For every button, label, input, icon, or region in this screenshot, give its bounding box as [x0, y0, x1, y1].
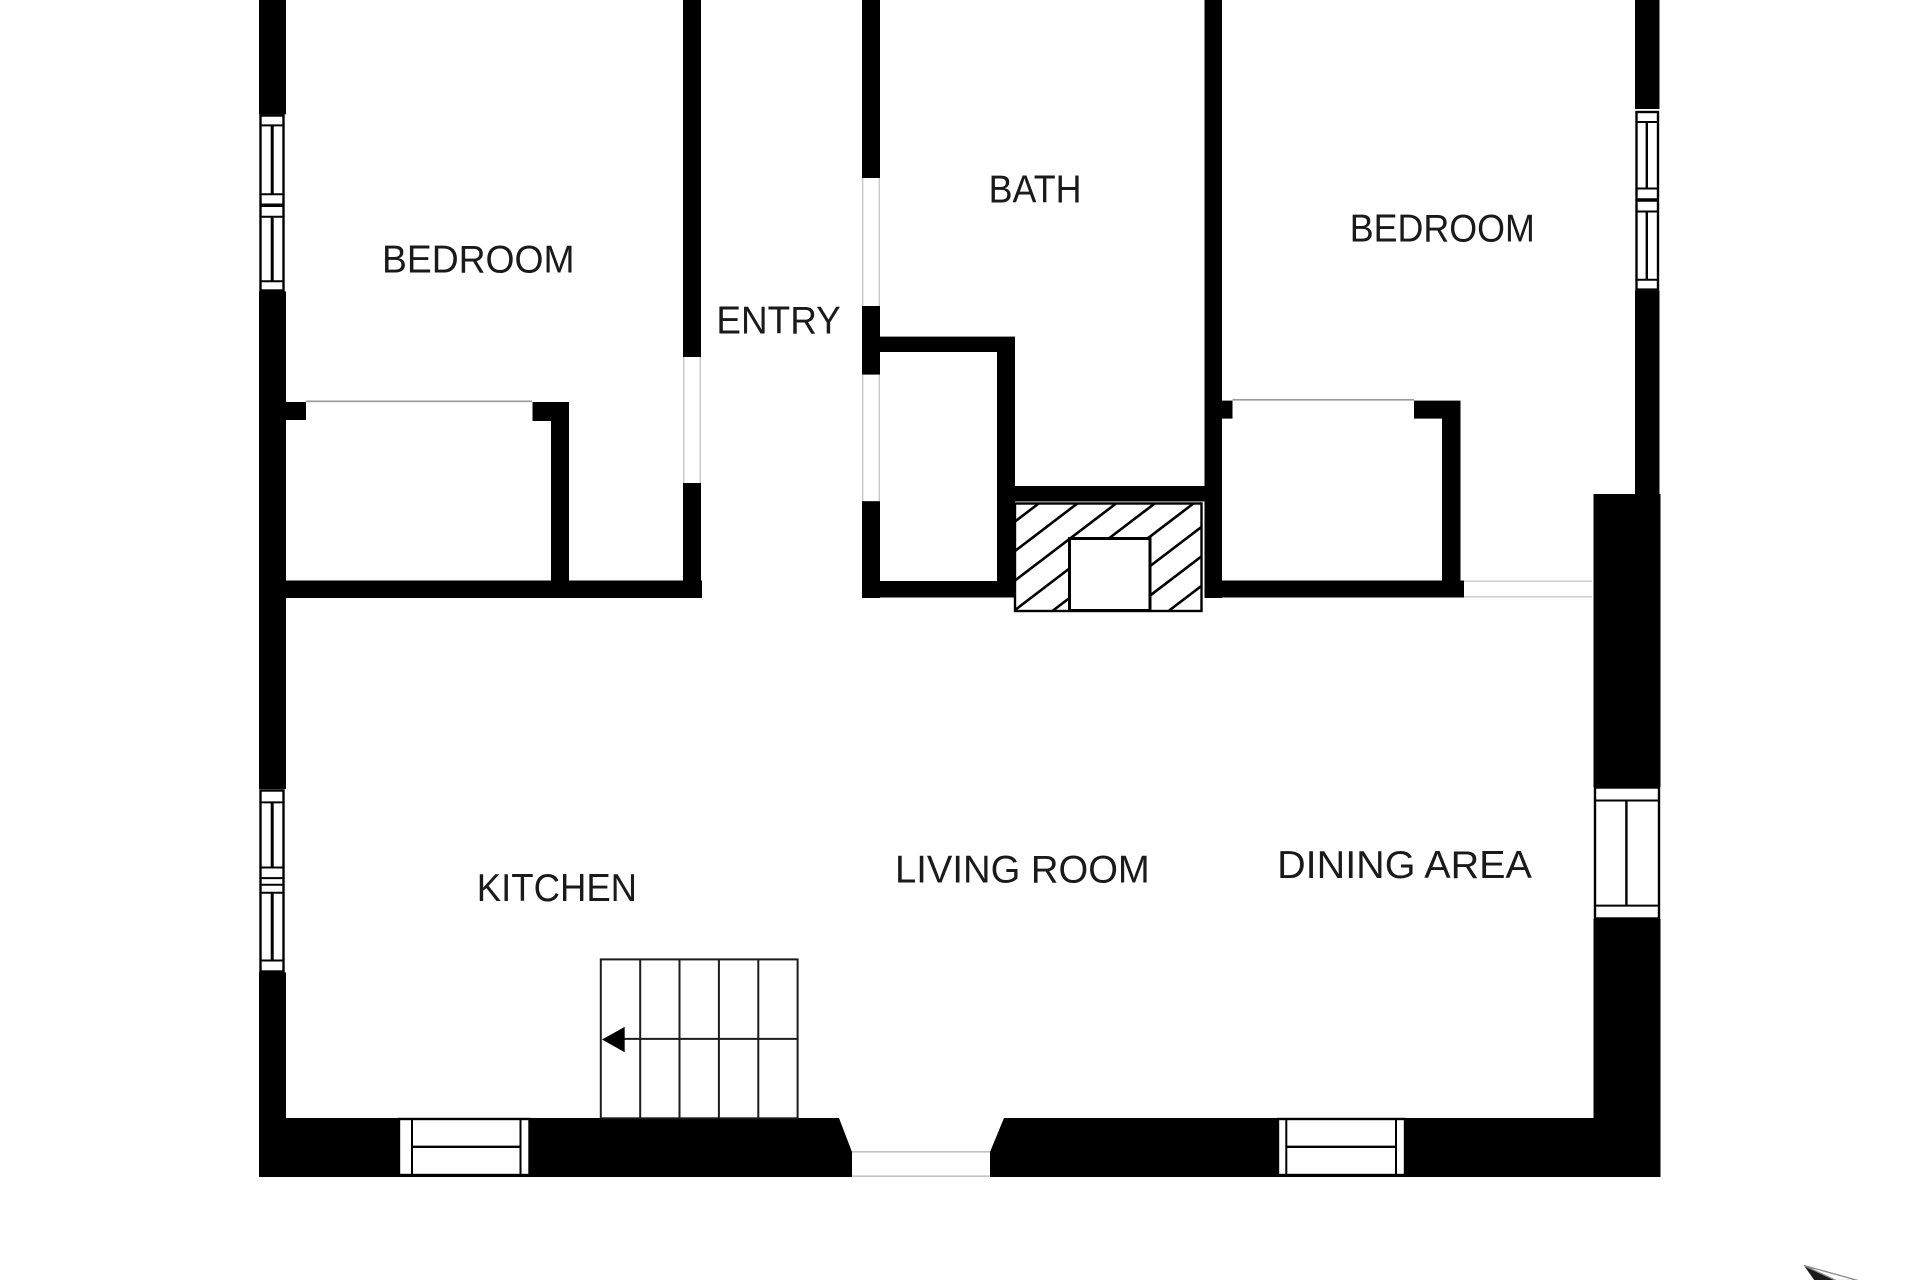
svg-text:BEDROOM: BEDROOM — [382, 239, 575, 282]
svg-text:BATH: BATH — [989, 168, 1082, 211]
svg-text:KITCHEN: KITCHEN — [477, 867, 637, 910]
svg-text:BEDROOM: BEDROOM — [1350, 207, 1535, 250]
svg-text:DINING AREA: DINING AREA — [1277, 844, 1532, 887]
svg-text:LIVING ROOM: LIVING ROOM — [895, 849, 1150, 892]
svg-text:ENTRY: ENTRY — [716, 299, 840, 342]
